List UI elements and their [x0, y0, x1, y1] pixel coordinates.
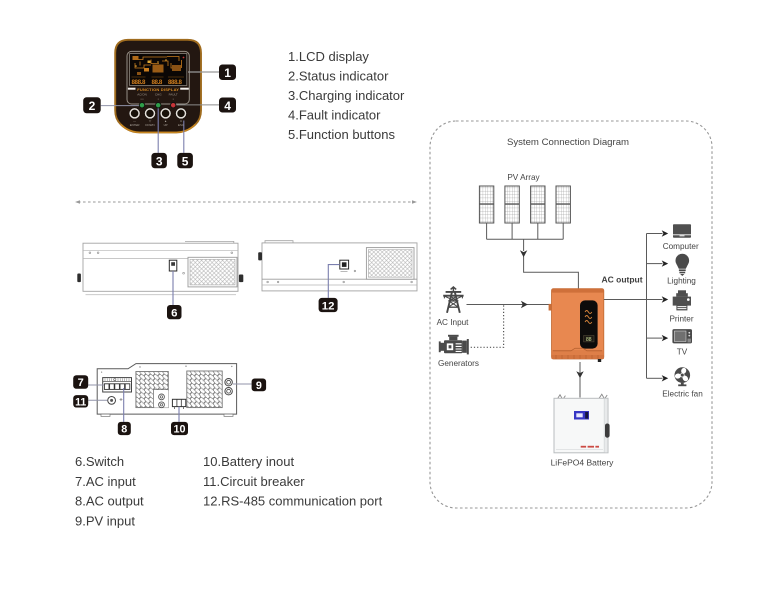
svg-text:LiFePO4 Battery: LiFePO4 Battery — [551, 458, 615, 468]
svg-text:11: 11 — [75, 396, 86, 408]
svg-text:2.Status indicator: 2.Status indicator — [288, 69, 389, 84]
svg-text:5.Function buttons: 5.Function buttons — [288, 127, 395, 142]
svg-text:9: 9 — [256, 380, 262, 392]
svg-text:9.PV input: 9.PV input — [75, 513, 135, 528]
svg-text:FUNCTION DISPLAY: FUNCTION DISPLAY — [137, 87, 179, 92]
svg-text:PV Array: PV Array — [507, 173, 540, 182]
svg-text:2: 2 — [89, 99, 96, 113]
svg-text:▪: ▪ — [158, 97, 159, 101]
svg-text:System Connection Diagram: System Connection Diagram — [507, 137, 629, 148]
svg-text:1.LCD display: 1.LCD display — [288, 49, 369, 64]
svg-text:8: 8 — [121, 424, 127, 436]
svg-text:12.RS-485 communication port: 12.RS-485 communication port — [203, 494, 383, 509]
svg-text:10.Battery inout: 10.Battery inout — [203, 454, 294, 469]
svg-text:6: 6 — [171, 308, 177, 320]
svg-text:8.AC output: 8.AC output — [75, 494, 144, 509]
svg-text:3: 3 — [156, 154, 163, 168]
svg-text:Computer: Computer — [663, 242, 699, 251]
svg-text:AC Input: AC Input — [437, 318, 470, 327]
svg-text:AC output: AC output — [602, 275, 643, 285]
svg-text:6.Switch: 6.Switch — [75, 454, 124, 469]
svg-text:ESC: ESC — [178, 123, 184, 127]
svg-text:DOWN: DOWN — [145, 123, 154, 127]
svg-text:4: 4 — [224, 99, 231, 113]
svg-text:Electric fan: Electric fan — [662, 390, 703, 399]
svg-text:▪ ▪: ▪ ▪ — [141, 97, 144, 101]
svg-text:UP: UP — [164, 123, 168, 127]
svg-text:888.8: 888.8 — [132, 79, 146, 86]
svg-text:4.Fault indicator: 4.Fault indicator — [288, 107, 381, 122]
svg-text:88.8: 88.8 — [152, 79, 163, 86]
svg-text:Lighting: Lighting — [667, 277, 696, 286]
svg-text:Printer: Printer — [669, 315, 693, 324]
svg-text:10: 10 — [173, 424, 185, 436]
svg-text:1: 1 — [224, 66, 231, 80]
svg-text:7: 7 — [78, 377, 84, 389]
svg-text:12: 12 — [322, 300, 335, 312]
svg-text:88: 88 — [586, 337, 592, 343]
svg-text:888.8: 888.8 — [168, 79, 182, 86]
svg-text:ENTER: ENTER — [130, 123, 140, 127]
svg-text:Generators: Generators — [438, 359, 479, 368]
svg-text:5: 5 — [182, 154, 189, 168]
svg-text:11.Circuit breaker: 11.Circuit breaker — [203, 474, 305, 489]
svg-text:3.Charging indicator: 3.Charging indicator — [288, 88, 405, 103]
svg-text:TV: TV — [677, 348, 688, 357]
svg-text:7.AC input: 7.AC input — [75, 474, 136, 489]
svg-text:▪: ▪ — [173, 97, 174, 101]
